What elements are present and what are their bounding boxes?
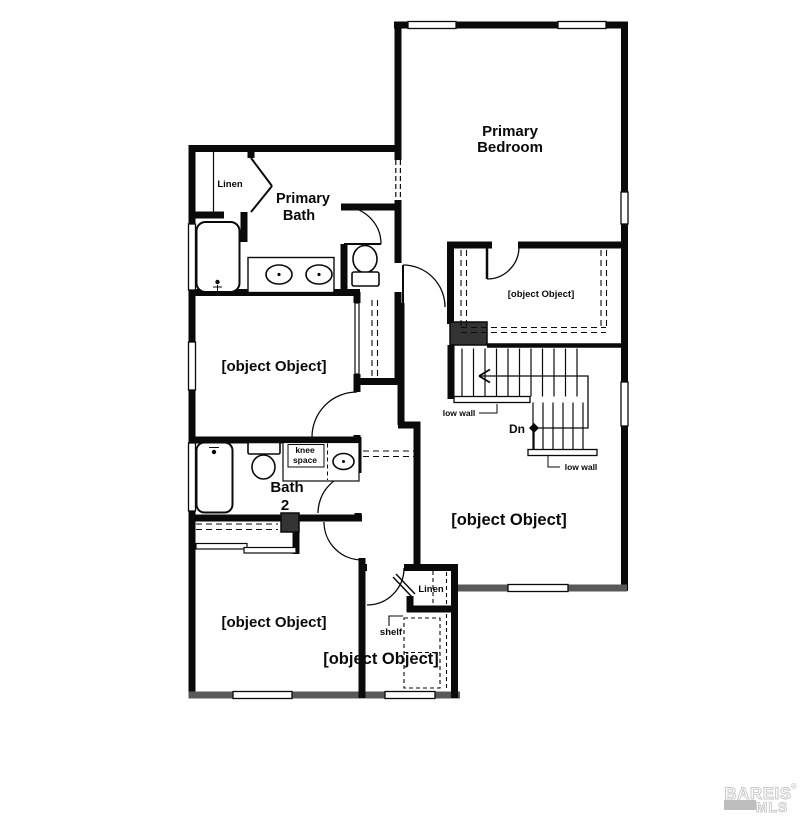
window [558, 22, 606, 29]
label-knee-space-line1: knee [295, 445, 315, 455]
room-label-primary-bath-line2: Bath [283, 208, 315, 224]
sink-drain [317, 273, 320, 276]
shelf-bracket [389, 616, 403, 626]
label-linen-laundry: Linen [418, 584, 444, 595]
watermark-registered: ® [791, 782, 797, 791]
fixtures-bath2 [197, 443, 360, 513]
toilet-tank [248, 443, 280, 455]
chase-bath2 [281, 513, 299, 532]
label-linen-bath: Linen [217, 179, 243, 190]
window [189, 342, 196, 390]
bedroom3-closet-slider [196, 544, 247, 550]
door-bifold-linen1 [251, 186, 272, 212]
window [233, 692, 292, 699]
label-knee-space-line2: space [293, 455, 317, 465]
room-label-primary-bedroom-line2: Bedroom [477, 139, 543, 156]
stair-low-wall-lower [528, 450, 597, 456]
window [621, 192, 628, 224]
chase-stairs [450, 322, 487, 345]
room-label-laundry: [object Object] [323, 650, 439, 668]
stair-treads-lower [533, 403, 583, 450]
room-label-wic: [object Object] [508, 289, 575, 300]
floor-plan: Primary Bedroom Primary Bath [object Obj… [0, 0, 808, 830]
bedroom2-closet-slider [355, 303, 359, 374]
stair-low-wall-upper [454, 397, 530, 403]
room-label-bedroom2: [object Object] [221, 358, 326, 375]
floor-plan-drawing: Primary Bedroom Primary Bath [object Obj… [0, 0, 808, 830]
window [189, 443, 196, 511]
window [408, 22, 456, 29]
door-bifold-linen1 [251, 158, 272, 186]
stair-treads-upper [462, 349, 577, 397]
tub-drain [215, 280, 219, 284]
sink-drain [277, 273, 280, 276]
toilet-tank [352, 272, 379, 286]
room-label-loft: [object Object] [451, 511, 567, 529]
toilet-bowl [252, 455, 275, 479]
door-arc-primary-bedroom [403, 265, 445, 307]
watermark: BAREIS ® MLS [724, 782, 797, 815]
stairs [454, 349, 597, 468]
room-label-primary-bath-line1: Primary [276, 191, 330, 207]
bedroom3-closet-slider [244, 548, 296, 554]
door-arc-bedroom3 [324, 522, 362, 560]
pocket-door-dashes [396, 160, 401, 200]
room-label-primary-bedroom-line1: Primary [482, 123, 539, 140]
leader-low-wall-lower [548, 456, 560, 467]
room-label-bedroom3: [object Object] [221, 614, 326, 631]
watermark-org: MLS [756, 799, 789, 815]
door-arc-wc [344, 207, 381, 244]
window [508, 585, 568, 592]
sink-drain [342, 460, 345, 463]
door-arc-bedroom2 [312, 392, 357, 437]
window [621, 382, 628, 426]
room-label-bath2-line1: Bath [270, 479, 303, 496]
tub-drain [212, 450, 216, 454]
door-arc-laundry [367, 568, 404, 605]
label-low-wall-lower: low wall [565, 462, 598, 472]
window [189, 224, 196, 290]
label-low-wall-upper: low wall [443, 408, 476, 418]
door-arc-wic [487, 247, 519, 279]
label-down: Dn [509, 422, 525, 436]
leader-low-wall-upper [479, 404, 497, 413]
stair-dn-marker [529, 423, 539, 433]
room-label-bath2-line2: 2 [281, 497, 289, 514]
window [385, 692, 435, 699]
toilet-bowl [353, 246, 377, 273]
label-shelf: shelf [380, 627, 403, 638]
